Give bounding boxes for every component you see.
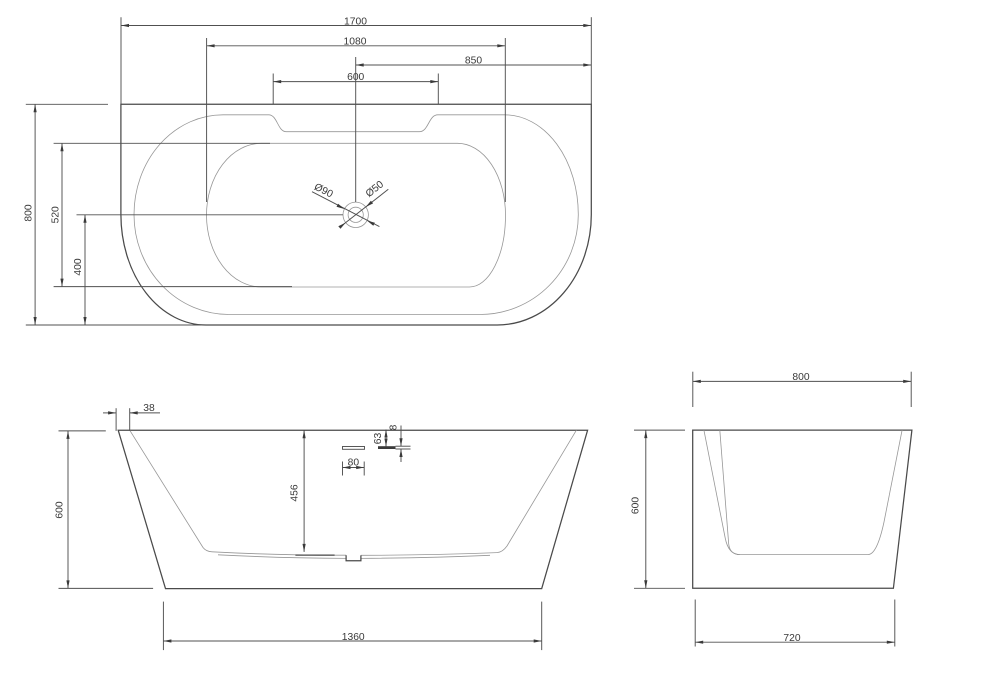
svg-text:600: 600 bbox=[55, 501, 66, 518]
svg-text:800: 800 bbox=[792, 372, 809, 383]
svg-text:8: 8 bbox=[389, 424, 400, 430]
svg-text:38: 38 bbox=[143, 403, 155, 414]
svg-text:520: 520 bbox=[51, 206, 62, 223]
svg-text:1080: 1080 bbox=[344, 36, 367, 47]
svg-text:456: 456 bbox=[290, 484, 301, 501]
svg-text:80: 80 bbox=[348, 458, 360, 469]
svg-text:800: 800 bbox=[24, 204, 35, 221]
svg-text:1360: 1360 bbox=[342, 632, 365, 643]
svg-text:63: 63 bbox=[373, 433, 384, 445]
svg-text:400: 400 bbox=[73, 258, 84, 275]
svg-text:600: 600 bbox=[631, 497, 642, 514]
svg-text:720: 720 bbox=[783, 633, 800, 644]
svg-text:1700: 1700 bbox=[344, 16, 367, 27]
svg-text:850: 850 bbox=[465, 56, 482, 67]
